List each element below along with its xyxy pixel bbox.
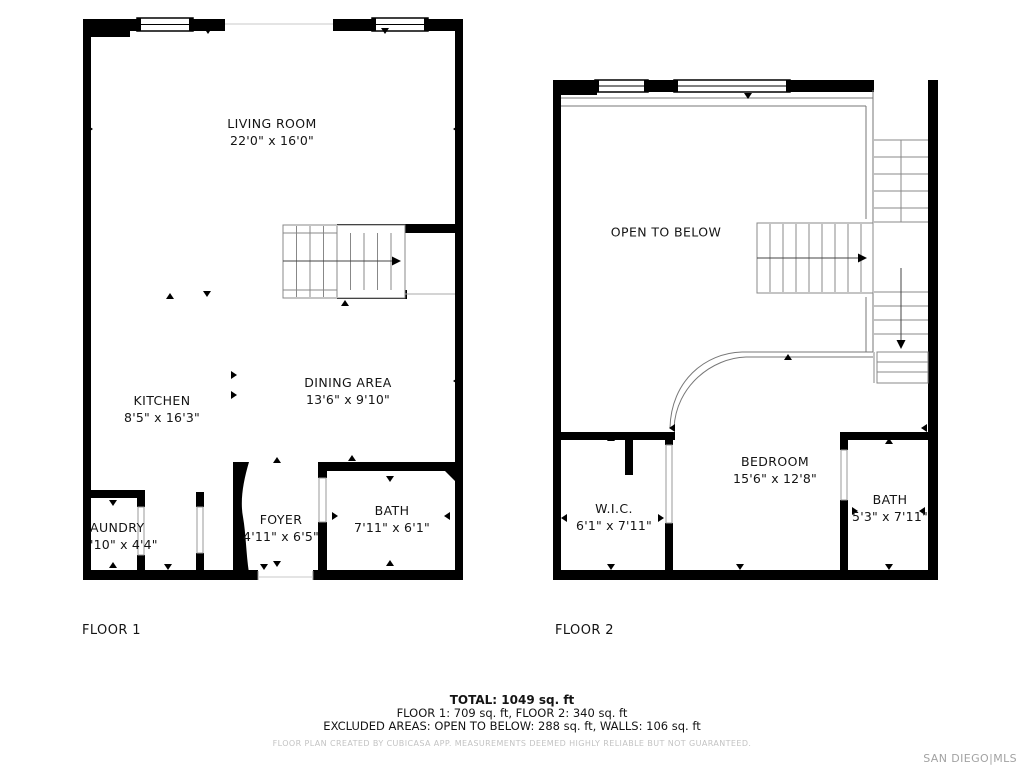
mls-watermark: SAN DIEGO|MLS	[923, 752, 1017, 765]
floor2-caption: FLOOR 2	[555, 623, 614, 638]
floor-plan-drawing	[0, 0, 1024, 768]
floor-plan-page: LIVING ROOM 22'0" x 16'0" KITCHEN 8'5" x…	[0, 0, 1024, 768]
room-label-laundry: AUNDRY '10" x 4'4"	[90, 519, 158, 553]
room-label-living-room: LIVING ROOM 22'0" x 16'0"	[227, 115, 316, 149]
room-name: BATH	[354, 502, 430, 519]
room-name: AUNDRY	[90, 519, 158, 536]
room-label-bedroom: BEDROOM 15'6" x 12'8"	[733, 453, 817, 487]
room-dims: 15'6" x 12'8"	[733, 470, 817, 487]
room-label-bath-floor1: BATH 7'11" x 6'1"	[354, 502, 430, 536]
floor1-stairs	[283, 225, 455, 298]
room-name: W.I.C.	[576, 500, 652, 517]
floor2-windows	[595, 80, 790, 92]
room-label-kitchen: KITCHEN 8'5" x 16'3"	[124, 392, 200, 426]
room-name: BEDROOM	[733, 453, 817, 470]
open-to-below-text: OPEN TO BELOW	[611, 224, 721, 241]
area-summary: TOTAL: 1049 sq. ft FLOOR 1: 709 sq. ft, …	[0, 694, 1024, 748]
room-label-wic: W.I.C. 6'1" x 7'11"	[576, 500, 652, 534]
room-dims: 4'11" x 6'5"	[243, 528, 319, 545]
room-dims: 8'5" x 16'3"	[124, 409, 200, 426]
floor-areas-line: FLOOR 1: 709 sq. ft, FLOOR 2: 340 sq. ft	[0, 707, 1024, 720]
floor2-stairs	[757, 140, 928, 383]
room-dims: '10" x 4'4"	[90, 536, 158, 553]
room-dims: 22'0" x 16'0"	[227, 132, 316, 149]
room-dims: 6'1" x 7'11"	[576, 517, 652, 534]
disclaimer-line: FLOOR PLAN CREATED BY CUBICASA APP. MEAS…	[0, 739, 1024, 748]
room-dims: 13'6" x 9'10"	[304, 391, 391, 408]
room-dims: 7'11" x 6'1"	[354, 519, 430, 536]
floor1-caption: FLOOR 1	[82, 623, 141, 638]
floor1-walls	[83, 19, 463, 580]
excluded-areas-line: EXCLUDED AREAS: OPEN TO BELOW: 288 sq. f…	[0, 720, 1024, 733]
room-dims: 5'3" x 7'11"	[852, 508, 928, 525]
room-label-dining-area: DINING AREA 13'6" x 9'10"	[304, 374, 391, 408]
room-name: FOYER	[243, 511, 319, 528]
room-name: LIVING ROOM	[227, 115, 316, 132]
room-name: KITCHEN	[124, 392, 200, 409]
room-name: DINING AREA	[304, 374, 391, 391]
open-to-below-label: OPEN TO BELOW	[611, 224, 721, 241]
room-name: BATH	[852, 491, 928, 508]
room-label-bath-floor2: BATH 5'3" x 7'11"	[852, 491, 928, 525]
room-label-foyer: FOYER 4'11" x 6'5"	[243, 511, 319, 545]
